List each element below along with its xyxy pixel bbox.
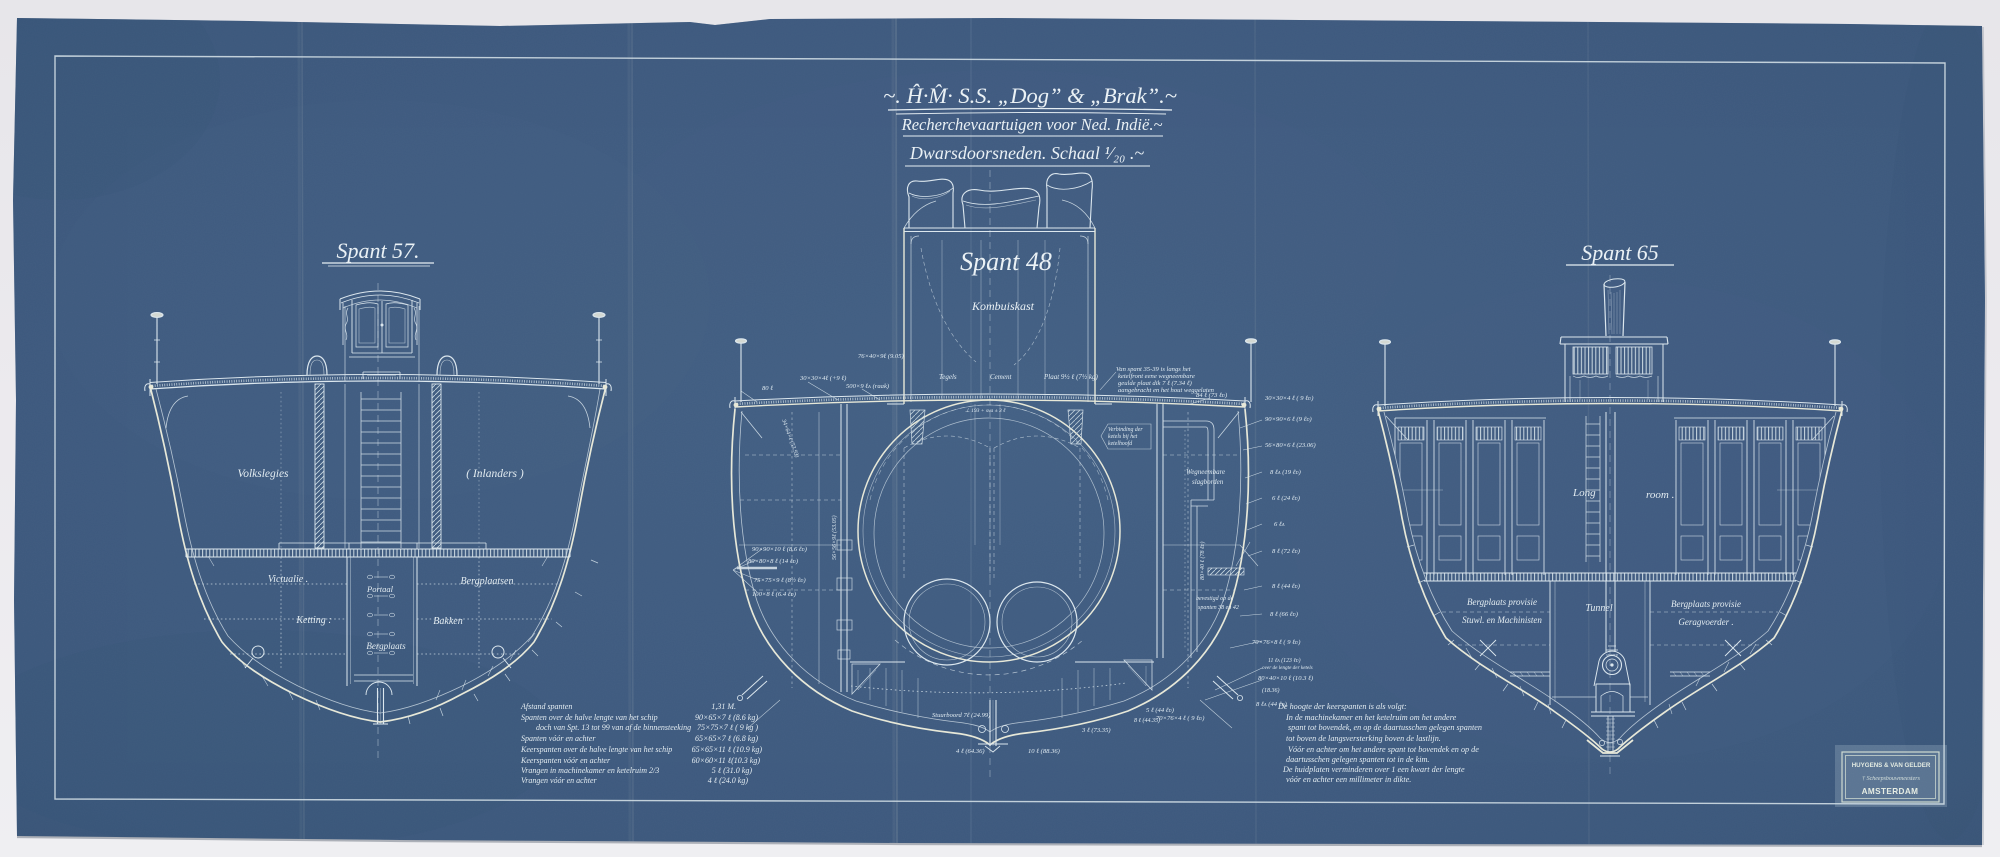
svg-text:56×80×6 ℓ (23.06): 56×80×6 ℓ (23.06) [1265,442,1316,449]
svg-text:76×40×9ℓ (9.05): 76×40×9ℓ (9.05) [858,353,904,360]
svg-text:over de lengte der ketels: over de lengte der ketels [1262,665,1313,671]
svg-text:Verbinding der: Verbinding der [1108,427,1143,433]
svg-text:65×65×7 ℓ (6.8 kg): 65×65×7 ℓ (6.8 kg) [695,734,758,743]
svg-text:Geragvoerder .: Geragvoerder . [1678,617,1733,627]
svg-text:Vrangen in machinekamer en ket: Vrangen in machinekamer en ketelruim 2/3 [521,766,659,775]
svg-text:Spanten vóór en achter: Spanten vóór en achter [521,734,596,743]
svg-text:Tunnel: Tunnel [1585,603,1612,614]
svg-text:80 ℓ: 80 ℓ [762,385,773,392]
svg-text:30×30×4ℓ (+9 ℓ): 30×30×4ℓ (+9 ℓ) [799,375,846,382]
svg-text:75×75×9 ℓ (8½ ℓʋ): 75×75×9 ℓ (8½ ℓʋ) [754,577,806,584]
svg-text:Bergplaats provisie: Bergplaats provisie [1671,599,1741,609]
svg-text:Keerspanten vóór en achter: Keerspanten vóór en achter [520,756,611,765]
svg-text:Stuurboord 7ℓ (24.99): Stuurboord 7ℓ (24.99) [932,712,990,719]
svg-text:Wegneembare: Wegneembare [1186,468,1225,476]
svg-text:8 ℓ (44 ℓʋ): 8 ℓ (44 ℓʋ) [1272,583,1300,590]
svg-text:daartusschen gelegen spanten t: daartusschen gelegen spanten tot in de k… [1286,755,1429,764]
svg-text:Long: Long [1572,487,1596,499]
svg-text:10 ℓ (88.36): 10 ℓ (88.36) [1028,748,1060,755]
svg-text:tot boven de langsversterking: tot boven de langsversterking boven de l… [1286,734,1441,743]
svg-text:Spant 65: Spant 65 [1581,240,1659,265]
svg-text:Kombuiskast: Kombuiskast [971,299,1035,313]
svg-text:Vrangen vóór en achter: Vrangen vóór en achter [521,776,597,785]
svg-text:4 ℓ (64.36): 4 ℓ (64.36) [956,748,985,755]
svg-text:Tegels: Tegels [939,373,957,381]
svg-text:6 ℓʌ: 6 ℓʌ [1274,521,1285,528]
svg-text:Vóór en achter om het andere s: Vóór en achter om het andere spant tot b… [1288,745,1479,754]
svg-text:† Scheepsbouwmeesters: † Scheepsbouwmeesters [1862,776,1920,782]
svg-text:8 ℓ (72 ℓʋ): 8 ℓ (72 ℓʋ) [1272,548,1300,555]
svg-text:room .: room . [1646,489,1674,501]
svg-text:Spanten over de halve lengte v: Spanten over de halve lengte van het sch… [521,713,658,722]
svg-text:Van spant 35-39 is langs het: Van spant 35-39 is langs het [1116,366,1191,373]
svg-text:90×65×7 ℓ (8.6 kg): 90×65×7 ℓ (8.6 kg) [695,713,758,722]
svg-text:90×90×10 ℓ (8.6 ℓʋ): 90×90×10 ℓ (8.6 ℓʋ) [752,546,807,553]
svg-text:Cement: Cement [990,373,1012,381]
svg-text:5 ℓ (44 ℓʋ): 5 ℓ (44 ℓʋ) [1146,707,1174,714]
svg-text:geulde plaat dik 7 ℓ (7.34 ℓ): geulde plaat dik 7 ℓ (7.34 ℓ) [1118,380,1192,387]
svg-text:84 ℓ (73 ℓʋ): 84 ℓ (73 ℓʋ) [1196,392,1227,399]
svg-text:30×30×4 ℓ ( 9 ℓʋ): 30×30×4 ℓ ( 9 ℓʋ) [1264,395,1313,402]
svg-text:Recherchevaartuigen voor Ned.: Recherchevaartuigen voor Ned. Indië.~ [901,115,1163,134]
svg-text:Dwarsdoorsneden. Schaal ¹⁄₂₀ .: Dwarsdoorsneden. Schaal ¹⁄₂₀ .~ [909,143,1144,163]
svg-text:65×65×11 ℓ (10.9 kg): 65×65×11 ℓ (10.9 kg) [692,745,763,754]
svg-text:90×90×6 ℓ (9 ℓʋ): 90×90×6 ℓ (9 ℓʋ) [1265,416,1312,423]
svg-text:Keerspanten over de halve leng: Keerspanten over de halve lengte van het… [520,745,672,754]
svg-text:Bakken: Bakken [433,616,462,627]
svg-text:De hoogte der keerspanten is a: De hoogte der keerspanten is als volgt: [1277,702,1407,711]
svg-text:vóór en achter een millimeter: vóór en achter een millimeter in dikte. [1286,775,1411,784]
svg-text:Portaal: Portaal [366,584,394,594]
svg-text:Spant 48: Spant 48 [960,247,1052,276]
svg-text:ketels bij het: ketels bij het [1108,434,1138,440]
svg-text:( Inlanders ): ( Inlanders ) [466,468,524,480]
svg-text:Stuwl. en Machinisten: Stuwl. en Machinisten [1462,615,1542,625]
svg-text:bevestigd op de: bevestigd op de [1196,596,1234,602]
svg-text:Bergplaats: Bergplaats [366,641,406,651]
svg-text:doch van Spt. 13 tot 99 van af: doch van Spt. 13 tot 99 van af de binnen… [536,723,691,732]
svg-text:80×40 ℓ (78 ℓʋ): 80×40 ℓ (78 ℓʋ) [1199,542,1206,580]
svg-text:spanten 38 en 42: spanten 38 en 42 [1198,604,1239,611]
svg-text:AMSTERDAM: AMSTERDAM [1862,787,1919,796]
svg-text:56×56×9ℓ (53.05): 56×56×9ℓ (53.05) [831,515,838,560]
svg-text:spant tot bovendek, en op de d: spant tot bovendek, en op de daartussche… [1288,723,1482,732]
svg-text:~. Ĥ·M̂· S.S. „Dog” & „Brak”.: ~. Ĥ·M̂· S.S. „Dog” & „Brak”.~ [883,82,1177,108]
svg-text:slagborden: slagborden [1192,478,1224,486]
svg-text:Ketting :: Ketting : [295,615,331,626]
svg-text:5 ℓ (31.0 kg): 5 ℓ (31.0 kg) [712,766,753,775]
svg-text:Spant 57.: Spant 57. [336,238,419,263]
svg-text:500×9 ℓʌ (raak): 500×9 ℓʌ (raak) [846,383,889,390]
svg-text:3 ℓ (73.35): 3 ℓ (73.35) [1081,727,1111,734]
svg-text:De huidplaten verminderen over: De huidplaten verminderen over 1 een kwa… [1282,765,1465,774]
svg-text:ketelhoofd: ketelhoofd [1108,440,1132,447]
svg-text:Plaat 9½ ℓ (7½ kg): Plaat 9½ ℓ (7½ kg) [1043,373,1099,381]
svg-text:80×40×10 ℓ (10.3 ℓ): 80×40×10 ℓ (10.3 ℓ) [1258,675,1313,682]
svg-text:Volkslegies: Volkslegies [237,468,289,480]
svg-text:HUYGENS & VAN GELDER: HUYGENS & VAN GELDER [1852,762,1931,769]
svg-text:80×80×8 ℓ (14 ℓʋ): 80×80×8 ℓ (14 ℓʋ) [748,558,798,565]
svg-text:Afstand spanten: Afstand spanten [520,702,572,711]
svg-text:70×76×8 ℓ ( 9 ℓʋ): 70×76×8 ℓ ( 9 ℓʋ) [1252,639,1300,646]
svg-text:8 ℓ (44.35): 8 ℓ (44.35) [1134,717,1160,724]
svg-text:4 ℓ (24.0 kg): 4 ℓ (24.0 kg) [708,776,749,785]
svg-text:6 ℓ (24 ℓʋ): 6 ℓ (24 ℓʋ) [1272,495,1300,502]
svg-text:smeerp: smeerp [1606,652,1618,657]
svg-text:8 ℓʌ (19 ℓʋ): 8 ℓʌ (19 ℓʋ) [1270,469,1301,476]
svg-text:1,31 M.: 1,31 M. [711,702,736,711]
svg-text:11 ℓʌ (123 ℓʋ): 11 ℓʌ (123 ℓʋ) [1268,657,1301,664]
svg-text:Victualie .: Victualie . [268,574,308,585]
svg-text:75×75×7 ℓ ( 9 kg ): 75×75×7 ℓ ( 9 kg ) [697,723,758,732]
svg-text:ketelfront eene wegneembare: ketelfront eene wegneembare [1118,373,1195,380]
svg-text:100×8 ℓ (6.4 ℓʋ): 100×8 ℓ (6.4 ℓʋ) [752,591,796,598]
svg-text:(18.36): (18.36) [1262,687,1280,694]
svg-text:Bergplaatsen: Bergplaatsen [461,576,514,587]
svg-text:Bergplaats provisie: Bergplaats provisie [1467,597,1537,607]
svg-text:60×60×11 ℓ(10.3 kg): 60×60×11 ℓ(10.3 kg) [692,756,761,765]
svg-text:⊥ 193 + sva ± 3 ℓ: ⊥ 193 + sva ± 3 ℓ [965,408,1006,414]
svg-text:In de machinekamer en het kete: In de machinekamer en het ketelruim om h… [1285,713,1457,722]
svg-text:8 ℓ (66 ℓʋ): 8 ℓ (66 ℓʋ) [1270,611,1298,618]
svg-text:70×76×4 ℓ ( 9 ℓʋ): 70×76×4 ℓ ( 9 ℓʋ) [1156,715,1204,722]
